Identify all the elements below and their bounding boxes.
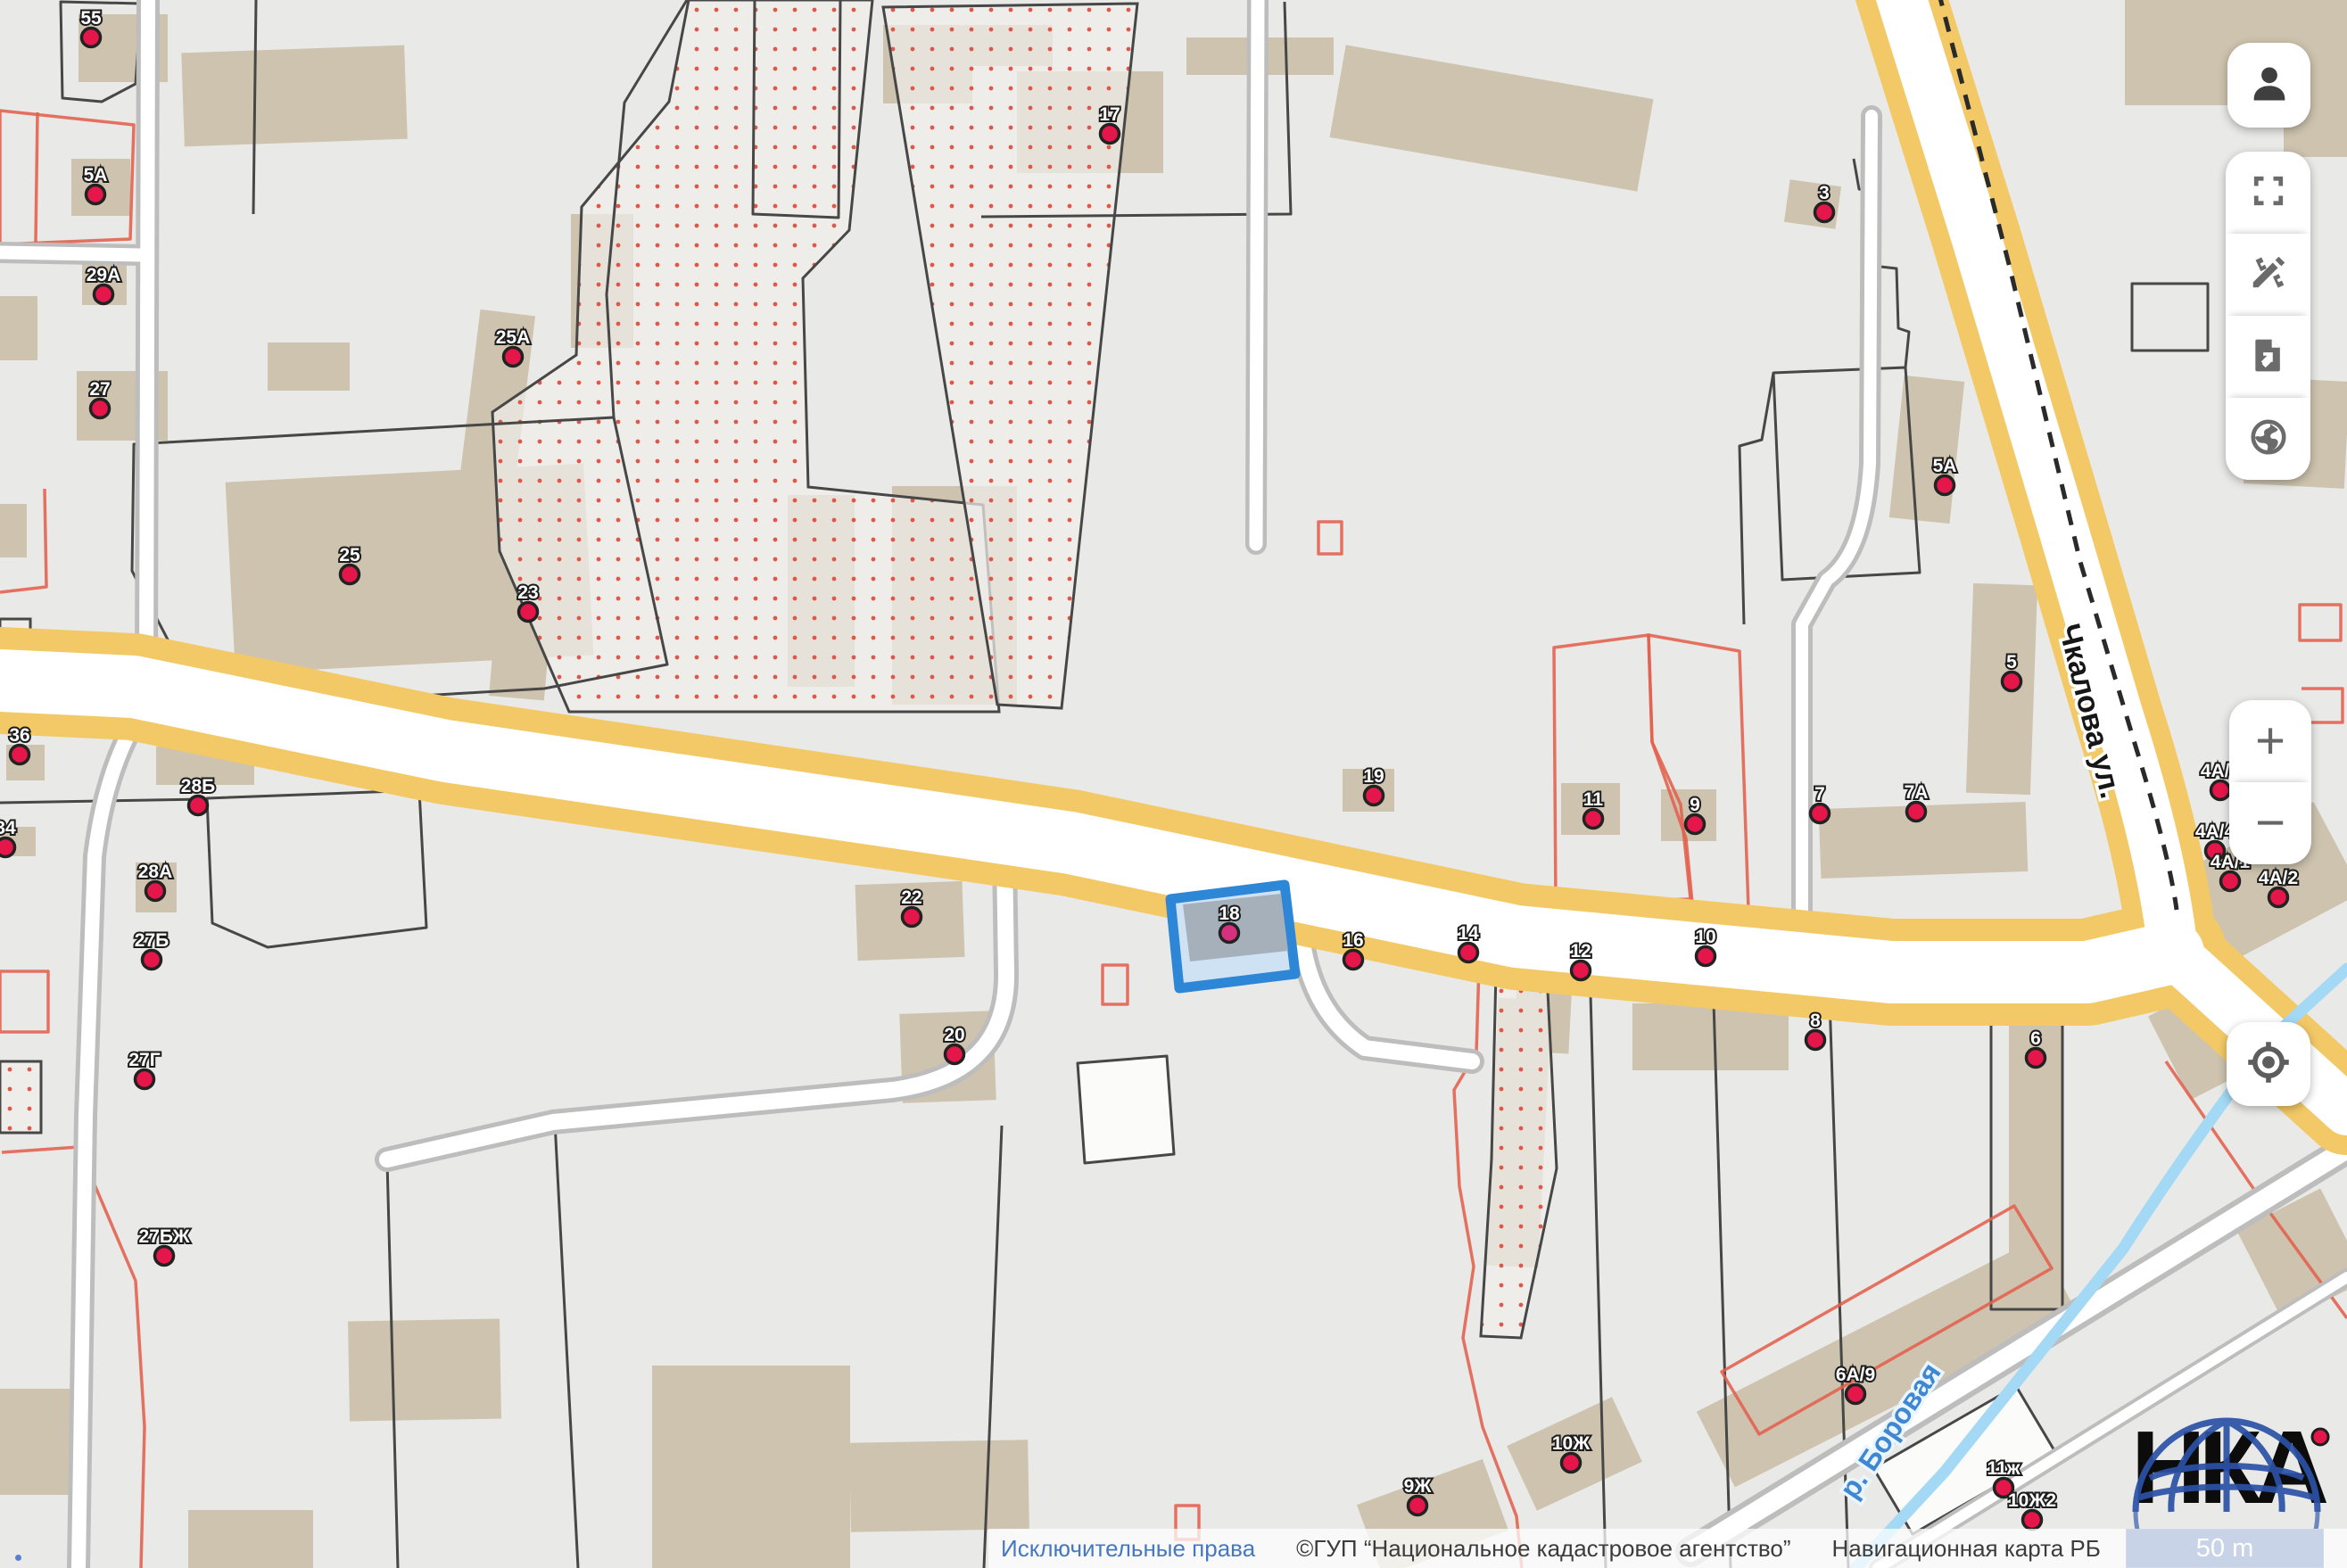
road [146,0,148,678]
map-marker[interactable]: 10 [1695,927,1715,966]
svg-text:3: 3 [1819,183,1830,203]
building [181,45,408,147]
map-marker[interactable]: 22 [901,887,921,927]
svg-text:27Г: 27Г [128,1050,160,1070]
locate-icon [2245,1039,2292,1090]
svg-text:10Ж2: 10Ж2 [2008,1490,2056,1511]
svg-text:25А: 25А [496,327,531,348]
map-app: Чкалова ул.р. Боровая555А29А2725А2325173… [0,0,2347,1568]
zoom-out-button[interactable]: − [2229,782,2311,864]
map-marker[interactable]: 12 [1570,941,1591,980]
export-file-icon [2249,335,2288,379]
svg-text:9: 9 [1690,795,1700,815]
svg-text:16: 16 [1343,930,1363,951]
building [348,1319,501,1422]
svg-text:11ж: 11ж [1987,1458,2021,1479]
svg-text:20: 20 [944,1025,964,1045]
svg-text:7А: 7А [1905,782,1929,803]
building [849,1440,1029,1531]
map-canvas[interactable]: Чкалова ул.р. Боровая555А29А2725А2325173… [0,0,2347,1568]
building [0,504,27,557]
measure-icon [2248,252,2289,298]
measure-button[interactable] [2226,234,2310,316]
nka-logo: НКА [2130,1412,2337,1530]
map-marker[interactable]: 27 [89,379,110,418]
svg-text:6: 6 [2030,1028,2041,1049]
svg-text:6А/9: 6А/9 [1836,1365,1875,1385]
svg-text:10: 10 [1695,927,1715,947]
map-marker[interactable]: 16 [1343,930,1363,970]
building [1784,179,1841,229]
svg-text:12: 12 [1570,941,1591,961]
road [0,252,143,255]
svg-text:17: 17 [1099,104,1120,125]
parcel-outline [1078,1056,1174,1163]
building [0,296,37,360]
globe-icon [2248,417,2289,462]
building [652,1366,850,1568]
svg-text:4А/2: 4А/2 [2259,868,2298,888]
selected-marker[interactable]: 18 [1219,904,1240,943]
svg-text:14: 14 [1458,923,1479,944]
road [1256,0,1258,544]
svg-text:55: 55 [80,8,102,29]
svg-text:28А: 28А [138,862,173,882]
attribution-bar: Исключительные права ©ГУП “Национальное … [988,1529,2347,1568]
building [268,342,350,391]
svg-text:34: 34 [0,818,16,838]
parcel-outline-red [36,112,37,243]
locate-button[interactable] [2227,1022,2310,1106]
svg-text:28Б: 28Б [181,776,215,796]
svg-text:29А: 29А [87,265,121,285]
svg-text:27Б: 27Б [135,930,169,951]
svg-text:7: 7 [1814,784,1825,805]
svg-text:5А: 5А [84,165,108,186]
map-marker[interactable]: 55 [80,8,102,47]
map-marker[interactable]: 34 [0,818,16,857]
zoom-controls: + − [2229,700,2311,864]
map-name-text: Навигационная карта РБ [1832,1535,2101,1563]
svg-text:25: 25 [339,545,360,565]
rights-link[interactable]: Исключительные права [1001,1535,1255,1563]
copyright-text: ©ГУП “Национальное кадастровое агентство… [1296,1535,1790,1563]
svg-text:5: 5 [2006,652,2017,673]
fullscreen-button[interactable] [2226,152,2310,234]
svg-text:27БЖ: 27БЖ [139,1226,191,1247]
svg-text:11: 11 [1583,789,1604,810]
svg-text:10Ж: 10Ж [1552,1433,1591,1454]
user-icon [2246,60,2293,111]
map-marker[interactable]: 5А [1933,456,1957,495]
map-marker[interactable]: 5А [84,165,108,204]
map-marker[interactable]: 23 [517,582,538,622]
nka-logo-pin [2312,1429,2328,1445]
map-marker[interactable]: 19 [1363,766,1384,805]
svg-text:8: 8 [1810,1011,1821,1031]
svg-text:18: 18 [1219,904,1240,924]
map-marker[interactable]: 14 [1458,923,1479,962]
status-dot [15,1555,21,1561]
map-marker[interactable]: 25 [339,545,360,584]
svg-text:19: 19 [1363,766,1384,787]
map-marker[interactable]: 7А [1905,782,1929,821]
export-document-button[interactable] [2226,316,2310,398]
svg-text:5А: 5А [1933,456,1957,476]
svg-text:27: 27 [89,379,110,400]
basemap-globe-button[interactable] [2226,398,2310,480]
map-marker[interactable]: 11 [1583,789,1604,829]
svg-text:36: 36 [9,725,29,746]
building [188,1510,313,1568]
fullscreen-icon [2249,171,2288,215]
building [1966,583,2037,795]
map-marker[interactable]: 20 [944,1025,964,1064]
zoom-in-button[interactable]: + [2229,700,2311,782]
map-marker[interactable]: 17 [1099,104,1120,144]
map-tools-group [2226,152,2310,480]
map-marker[interactable]: 36 [9,725,29,764]
account-button[interactable] [2227,43,2310,128]
dotted-parcel [0,1061,41,1133]
svg-text:23: 23 [517,582,538,603]
svg-text:22: 22 [901,887,921,908]
svg-text:9Ж: 9Ж [1404,1476,1433,1497]
